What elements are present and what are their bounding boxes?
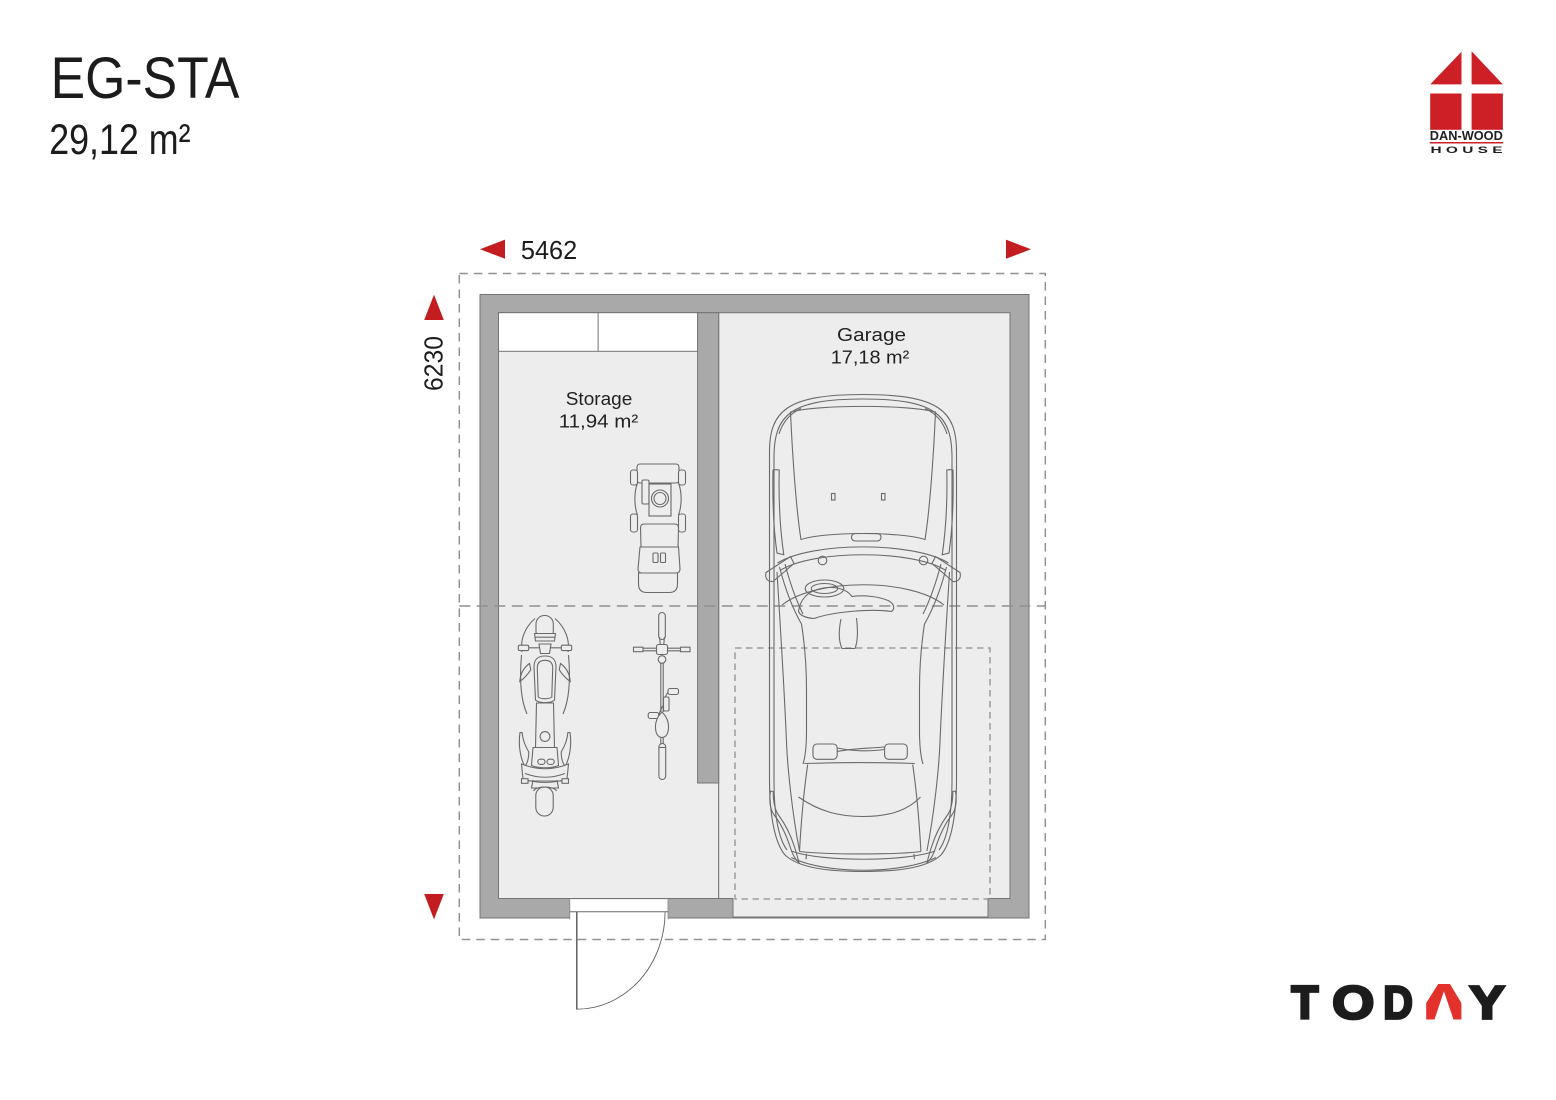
- svg-text:DAN-WOOD: DAN-WOOD: [1430, 128, 1503, 143]
- svg-text:Storage: Storage: [566, 388, 633, 409]
- svg-text:Garage: Garage: [837, 324, 906, 345]
- svg-text:5462: 5462: [521, 237, 577, 265]
- svg-text:D: D: [1383, 977, 1413, 1029]
- svg-text:Y: Y: [1470, 977, 1505, 1029]
- svg-text:EG-STA: EG-STA: [51, 46, 240, 111]
- svg-text:H O U S E: H O U S E: [1431, 145, 1503, 156]
- svg-text:17,18 m²: 17,18 m²: [831, 346, 910, 367]
- svg-text:29,12 m²: 29,12 m²: [49, 117, 190, 164]
- svg-text:O: O: [1332, 977, 1374, 1029]
- svg-text:6230: 6230: [421, 336, 449, 391]
- svg-text:T: T: [1291, 977, 1318, 1029]
- svg-text:11,94 m²: 11,94 m²: [559, 411, 639, 432]
